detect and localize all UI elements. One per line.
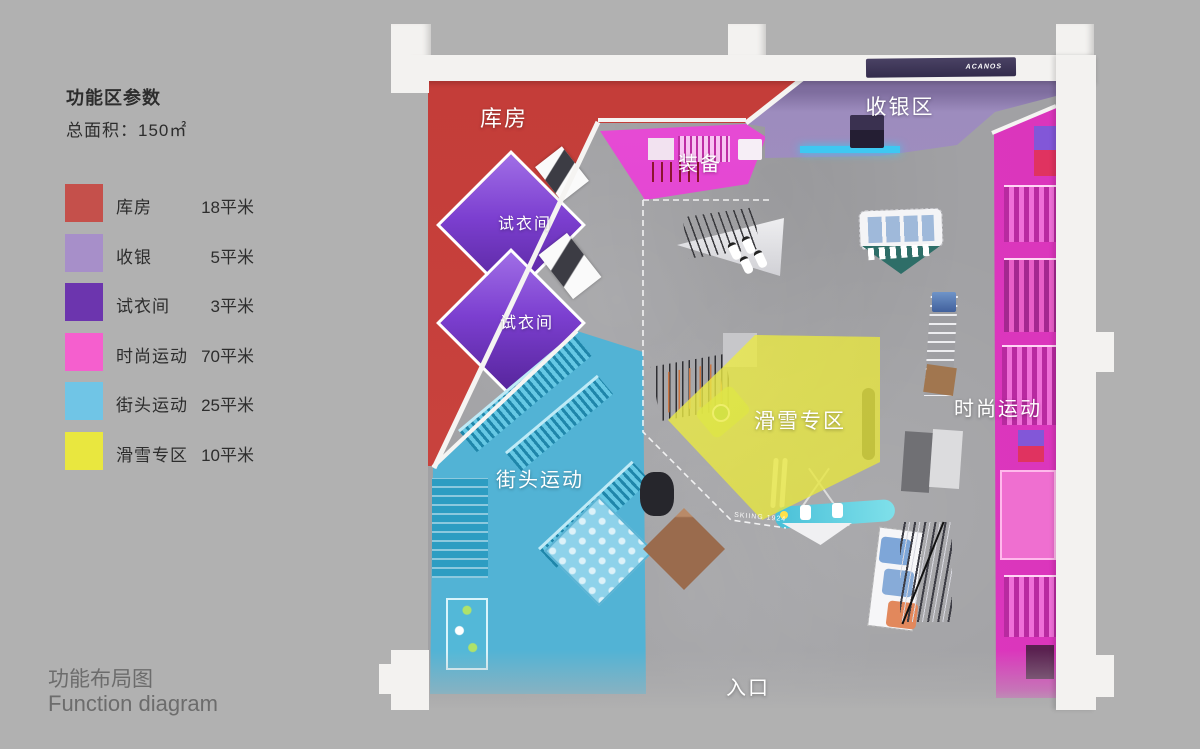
label-fitting-room-1: 试衣间 bbox=[498, 210, 552, 234]
label-fashion-sports: 时尚运动 bbox=[954, 393, 1042, 422]
label-equipment: 装备 bbox=[678, 148, 722, 177]
bottom-left-wall bbox=[391, 650, 429, 710]
label-street-sports: 街头运动 bbox=[496, 464, 584, 493]
column-stub bbox=[1094, 332, 1114, 372]
column bbox=[1056, 24, 1094, 57]
column-stub bbox=[379, 664, 395, 694]
right-wall bbox=[1056, 55, 1096, 710]
brand-sign: ACANOS bbox=[866, 57, 1016, 78]
corner-wall bbox=[391, 55, 429, 93]
function-diagram-canvas: 功能区参数 总面积：150㎡ 库房 18平米 收银 5平米 试衣间 3平米 时尚… bbox=[0, 0, 1200, 749]
column-stub bbox=[1094, 655, 1114, 697]
label-fitting-room-2: 试衣间 bbox=[500, 309, 554, 333]
column bbox=[728, 24, 766, 57]
label-cashier: 收银区 bbox=[866, 91, 935, 121]
wall-lines bbox=[0, 0, 1200, 749]
label-entrance: 入口 bbox=[726, 672, 770, 701]
label-ski-zone: 滑雪专区 bbox=[754, 405, 846, 435]
label-storage: 库房 bbox=[480, 101, 528, 133]
